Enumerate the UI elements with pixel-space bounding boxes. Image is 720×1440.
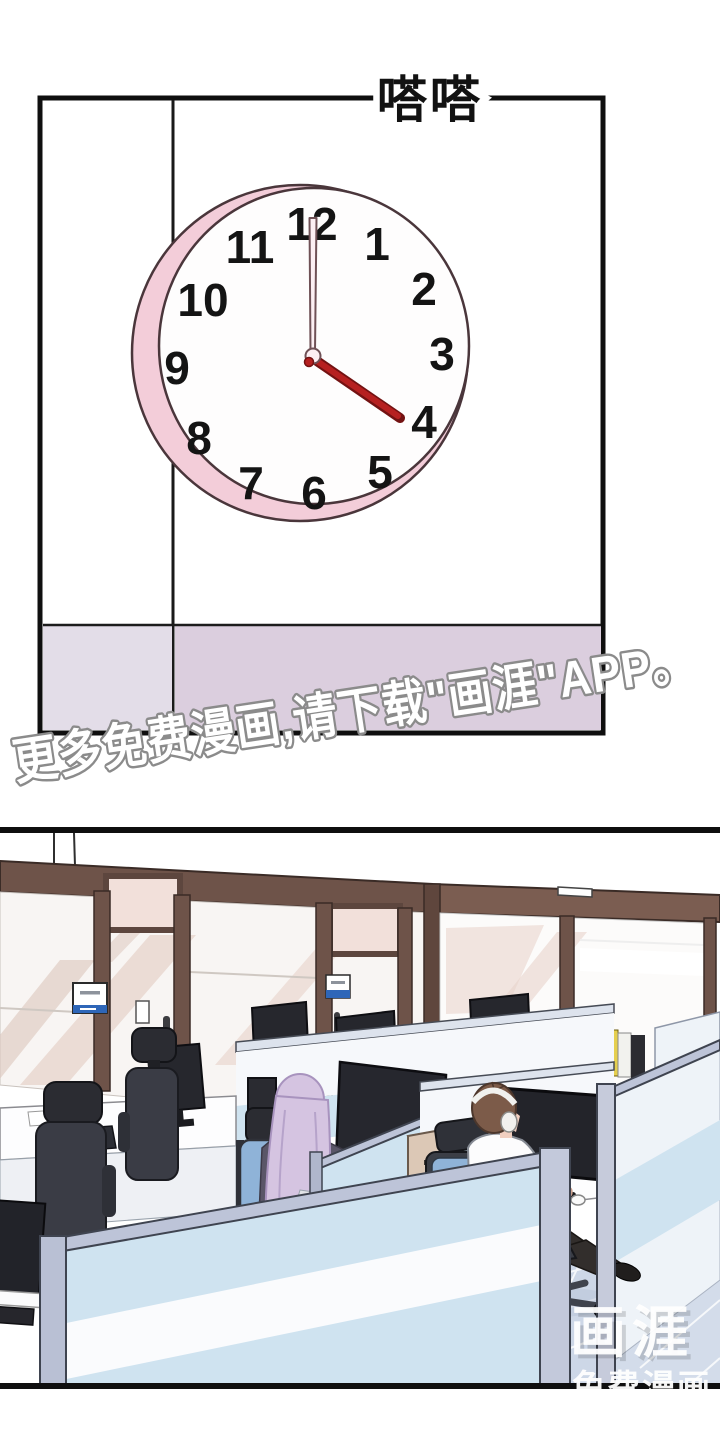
door-sign-text-line [80,991,100,995]
door-sign-text-line [331,981,345,984]
door-closer-plate [558,887,592,897]
clock-number-11: 11 [226,221,275,273]
chair-armrest [102,1165,116,1217]
keyboard [0,1306,34,1325]
binder-black [631,1035,645,1079]
light-switch [136,1001,149,1023]
wall-clock: 12 1 2 3 4 5 6 7 8 9 10 11 [132,185,469,521]
clock-center-knot [305,358,314,367]
transom-window [106,876,180,930]
app-logo: 画涯 画涯 免费漫画 [570,1301,712,1405]
chair-armrest [118,1112,130,1152]
desk-edge [0,1290,43,1308]
binder-white [618,1033,631,1077]
clock-number-4: 4 [411,396,437,448]
clock-number-7: 7 [238,457,264,509]
partition-post [540,1148,570,1386]
clock-number-8: 8 [186,412,212,464]
door-sign-bar-text [80,1008,96,1010]
minute-hand [310,218,317,352]
chair-headrest [132,1028,176,1062]
panel-clock: 12 1 2 3 4 5 6 7 8 9 10 11 嗒嗒 [40,72,603,733]
chair-headrest [44,1082,102,1124]
logo-subtitle: 免费漫画 [572,1368,712,1405]
clock-number-3: 3 [429,328,455,380]
door-sign-small [326,975,350,998]
headphones-earcup [501,1112,517,1132]
monitor-back [0,1200,45,1295]
panel2-top-border [0,827,720,833]
clock-number-6: 6 [301,467,327,519]
clock-number-5: 5 [367,446,393,498]
mouse [571,1195,585,1205]
logo-title: 画涯 [570,1301,694,1364]
clock-number-1: 1 [364,218,390,270]
ceiling-pillar-line [74,833,75,866]
clock-number-9: 9 [164,342,190,394]
clock-number-2: 2 [411,263,437,315]
chair-back [126,1068,178,1180]
partition-post [40,1236,66,1386]
sfx-ticktock-text: 嗒嗒 [377,72,483,128]
door-sign-blue-bar [326,990,350,998]
comic-page: 12 1 2 3 4 5 6 7 8 9 10 11 嗒嗒 更多免费漫画,请下载… [0,0,720,1440]
clock-number-10: 10 [177,274,228,326]
transom-window [330,906,400,954]
door-sign-large [73,983,107,1013]
comic-artwork: 12 1 2 3 4 5 6 7 8 9 10 11 嗒嗒 更多免费漫画,请下载… [0,0,720,1440]
